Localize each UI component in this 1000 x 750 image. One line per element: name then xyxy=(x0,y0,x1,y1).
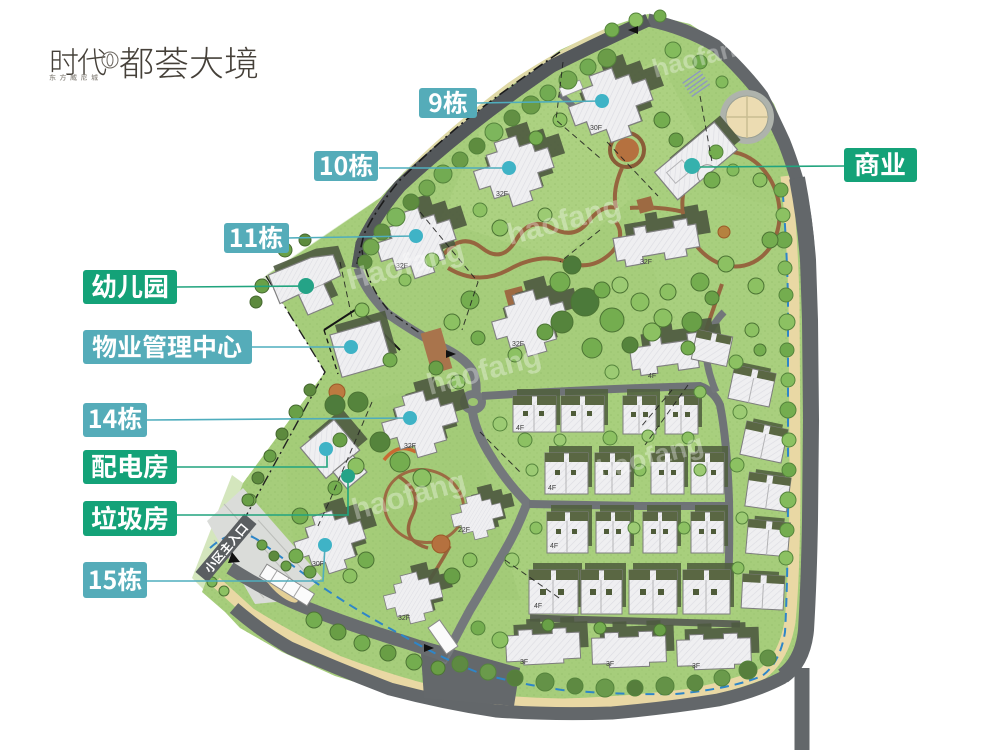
svg-text:30F: 30F xyxy=(312,561,324,568)
svg-text:4F: 4F xyxy=(516,425,524,432)
svg-text:32F: 32F xyxy=(640,259,652,266)
svg-text:4F: 4F xyxy=(534,603,542,610)
svg-text:22F: 22F xyxy=(458,527,470,534)
svg-text:4F: 4F xyxy=(548,485,556,492)
svg-text:3F: 3F xyxy=(520,659,528,666)
svg-text:32F: 32F xyxy=(496,191,508,198)
svg-text:4F: 4F xyxy=(648,373,656,380)
svg-text:32F: 32F xyxy=(398,615,410,622)
svg-text:30F: 30F xyxy=(590,125,602,132)
svg-text:3F: 3F xyxy=(606,661,614,668)
svg-text:3F: 3F xyxy=(692,663,700,670)
svg-text:4F: 4F xyxy=(550,543,558,550)
svg-text:32F: 32F xyxy=(404,443,416,450)
